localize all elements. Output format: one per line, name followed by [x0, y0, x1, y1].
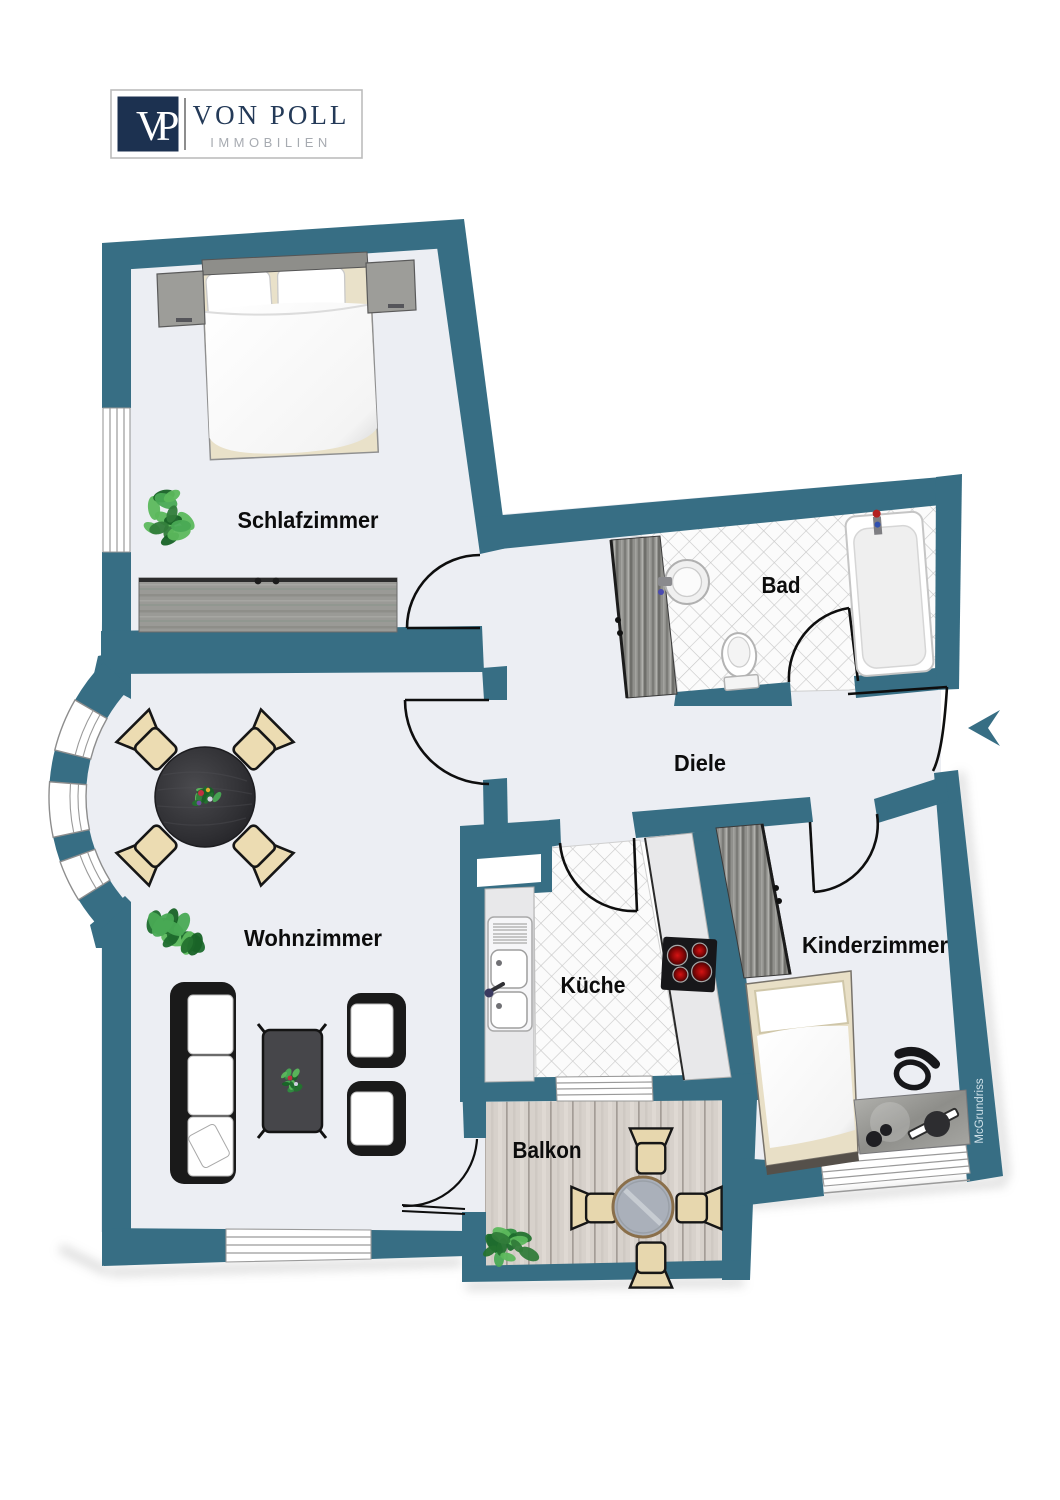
svg-text:IMMOBILIEN: IMMOBILIEN: [210, 135, 332, 150]
svg-text:Schlafzimmer: Schlafzimmer: [238, 507, 379, 533]
svg-text:Balkon: Balkon: [513, 1137, 582, 1163]
svg-text:Diele: Diele: [674, 750, 726, 776]
svg-text:Bad: Bad: [762, 572, 801, 598]
svg-text:VON POLL: VON POLL: [193, 100, 350, 130]
svg-text:McGrundriss: McGrundriss: [974, 1078, 986, 1143]
svg-text:Wohnzimmer: Wohnzimmer: [244, 925, 382, 951]
svg-text:Kinderzimmer: Kinderzimmer: [802, 932, 948, 958]
svg-text:P: P: [156, 104, 179, 150]
svg-text:Küche: Küche: [561, 972, 626, 998]
